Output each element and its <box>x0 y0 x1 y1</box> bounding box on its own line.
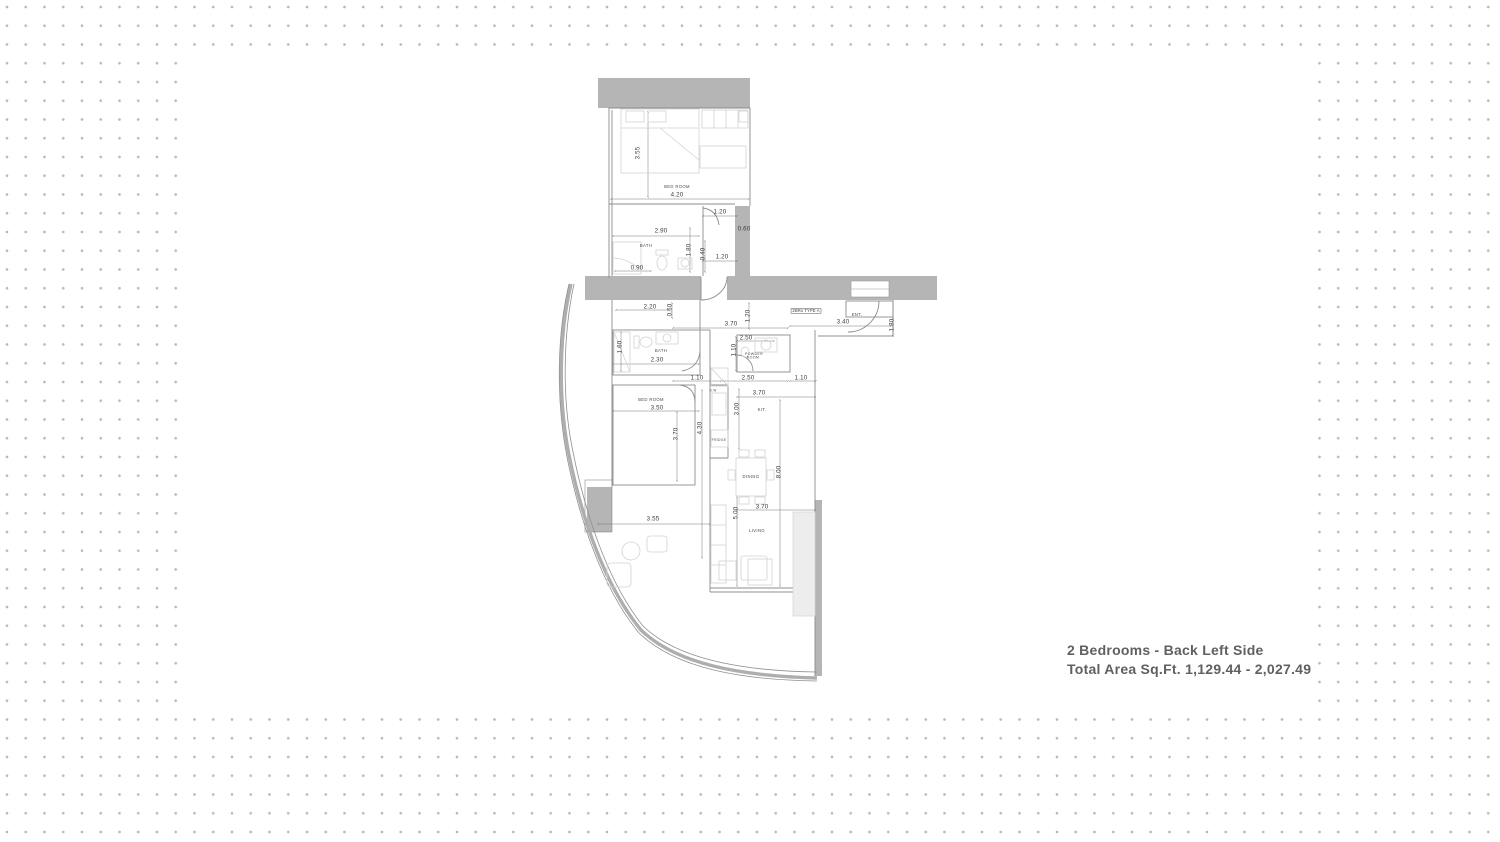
plan-caption: 2 Bedrooms - Back Left Side Total Area S… <box>1067 641 1311 678</box>
caption-area: Total Area Sq.Ft. 1,129.44 - 2,027.49 <box>1067 660 1311 679</box>
corridor-window <box>851 281 889 297</box>
floorplan-drawing <box>0 0 1500 842</box>
balcony-railing <box>559 284 817 681</box>
dimension-lines <box>598 112 893 586</box>
floorplan-page: 3.554.201.202.900.601.800.401.200.902.20… <box>0 0 1500 842</box>
caption-title: 2 Bedrooms - Back Left Side <box>1067 641 1311 660</box>
furniture <box>607 109 815 616</box>
wall-blocks <box>585 78 937 676</box>
